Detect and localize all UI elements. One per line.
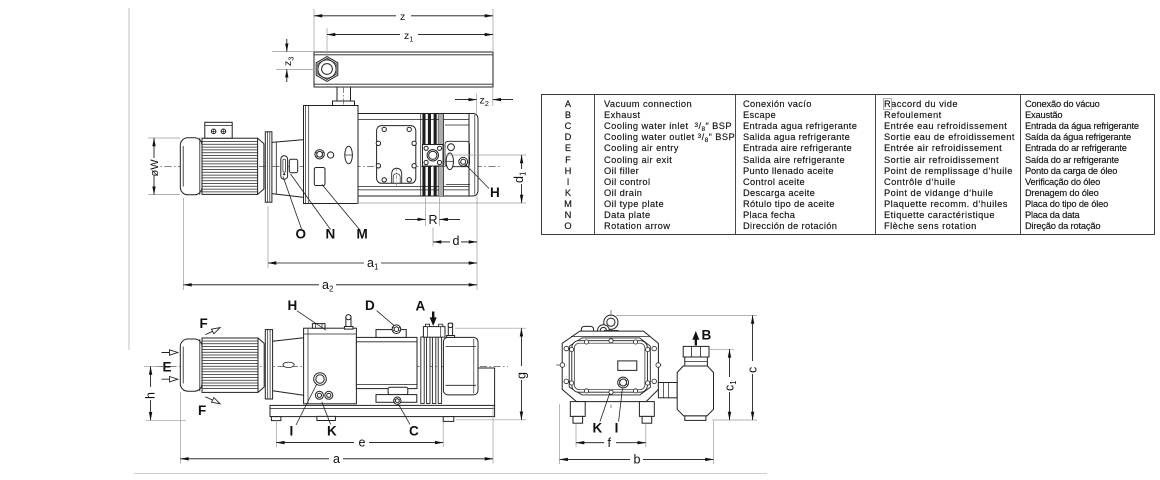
svg-text:b: b	[634, 453, 641, 467]
svg-text:f: f	[608, 436, 612, 450]
svg-text:K: K	[327, 423, 337, 438]
svg-text:E: E	[163, 360, 172, 375]
svg-text:F: F	[200, 316, 208, 331]
svg-text:F: F	[198, 403, 206, 418]
svg-text:c: c	[746, 367, 760, 373]
svg-text:øW: øW	[149, 159, 161, 177]
svg-text:I: I	[290, 423, 294, 438]
svg-text:R: R	[429, 213, 438, 227]
svg-text:A: A	[416, 298, 426, 313]
svg-text:g: g	[514, 372, 528, 379]
svg-text:d1: d1	[512, 171, 528, 183]
svg-text:M: M	[357, 227, 368, 242]
svg-text:z2: z2	[480, 95, 489, 108]
svg-text:a: a	[333, 452, 340, 466]
svg-text:D: D	[365, 298, 375, 313]
svg-text:O: O	[296, 227, 307, 242]
svg-text:B: B	[702, 327, 712, 342]
svg-text:H: H	[288, 298, 298, 313]
svg-text:C: C	[409, 423, 419, 438]
svg-text:H: H	[490, 185, 500, 200]
svg-text:h: h	[144, 392, 158, 399]
svg-text:I: I	[615, 420, 619, 435]
svg-text:K: K	[593, 420, 603, 435]
svg-text:z: z	[400, 11, 405, 23]
svg-text:e: e	[359, 436, 366, 450]
svg-text:d: d	[453, 234, 460, 248]
